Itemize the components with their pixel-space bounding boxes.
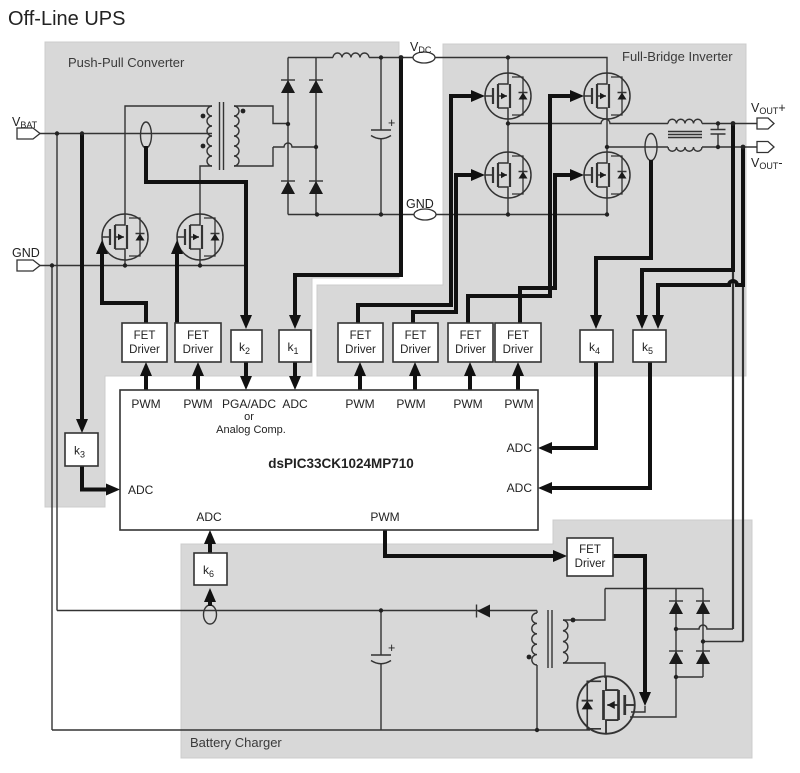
fet-driver-6-line1: FET	[507, 330, 529, 342]
gnd-left-terminal	[17, 260, 40, 271]
page-title: Off-Line UPS	[8, 8, 125, 30]
fet-driver-1-box	[122, 323, 167, 362]
k2-sub: 2	[245, 346, 250, 356]
fet-driver-2-line1: FET	[187, 330, 209, 342]
vout-minus-terminal	[757, 142, 774, 153]
vdc-label: VDC	[410, 40, 432, 55]
full-bridge-region-label: Full-Bridge Inverter	[622, 49, 733, 64]
fet-driver-1-line1: FET	[134, 330, 156, 342]
chip-pga-note-or: or	[244, 411, 254, 423]
k5-sub: 5	[648, 346, 653, 356]
chip-pin-pwm4: PWM	[396, 397, 425, 411]
fet-driver-5-line2: Driver	[455, 344, 486, 356]
chip-pin-pwm2: PWM	[183, 397, 212, 411]
fet-driver-2-box	[175, 323, 221, 362]
chip-pga-note-analog: Analog Comp.	[216, 424, 286, 436]
fet-driver-5-line1: FET	[460, 330, 482, 342]
fet-driver-1-line2: Driver	[129, 344, 160, 356]
fet-driver-7-line1: FET	[579, 544, 601, 556]
chip-pin-pwm6: PWM	[504, 397, 533, 411]
gnd-left-label: GND	[12, 246, 40, 260]
vout-plus-suffix: +	[778, 101, 785, 115]
fet-driver-5-box	[448, 323, 493, 362]
chip-pin-pwm-bottom: PWM	[370, 510, 399, 524]
fet-driver-4-box	[393, 323, 438, 362]
vbat-sub: BAT	[20, 120, 37, 130]
vout-plus-label: VOUT+	[751, 101, 786, 116]
fet-driver-3-line1: FET	[350, 330, 372, 342]
offline-ups-diagram: Off-Line UPS Push-Pull Converter Full-Br…	[0, 0, 800, 773]
k3-sub: 3	[80, 450, 85, 460]
k4-sub: 4	[595, 346, 600, 356]
push-pull-region-label: Push-Pull Converter	[68, 55, 185, 70]
vout-plus-sub: OUT	[759, 106, 779, 116]
chip-pin-pga-adc: PGA/ADC	[222, 397, 276, 411]
fet-driver-3-line2: Driver	[345, 344, 376, 356]
gnd-mid-label: GND	[406, 197, 434, 211]
vdc-cap-plus: +	[388, 116, 395, 130]
chip-pin-adc-bottom: ADC	[196, 510, 222, 524]
chip-pin-adc-left: ADC	[128, 483, 154, 497]
fet-driver-2-line2: Driver	[183, 344, 214, 356]
fet-driver-6-line2: Driver	[503, 344, 534, 356]
fet-driver-4-line2: Driver	[400, 344, 431, 356]
fet-driver-4-line1: FET	[405, 330, 427, 342]
fet-driver-7-line2: Driver	[575, 558, 606, 570]
vdc-sub: DC	[418, 45, 431, 55]
chip-name: dsPIC33CK1024MP710	[268, 456, 414, 471]
battery-cap-plus: +	[388, 641, 395, 655]
fet-driver-6-box	[495, 323, 541, 362]
vout-minus-sub: OUT	[759, 161, 779, 171]
fet-driver-3-box	[338, 323, 383, 362]
vbat-label: VBAT	[12, 115, 38, 130]
schematic-canvas: Off-Line UPS Push-Pull Converter Full-Br…	[0, 0, 800, 773]
chip-pin-adc-right1: ADC	[507, 441, 533, 455]
battery-region-label: Battery Charger	[190, 735, 282, 750]
chip-pin-pwm3: PWM	[345, 397, 374, 411]
k6-sub: 6	[209, 569, 214, 579]
chip-pin-adc-right2: ADC	[507, 481, 533, 495]
vout-plus-terminal	[757, 118, 774, 129]
k1-sub: 1	[293, 346, 298, 356]
chip-pin-pwm1: PWM	[131, 397, 160, 411]
vout-minus-suffix: -	[778, 156, 782, 170]
chip-pin-adc-top: ADC	[282, 397, 308, 411]
chip-pin-pwm5: PWM	[453, 397, 482, 411]
vout-minus-label: VOUT-	[751, 156, 783, 171]
